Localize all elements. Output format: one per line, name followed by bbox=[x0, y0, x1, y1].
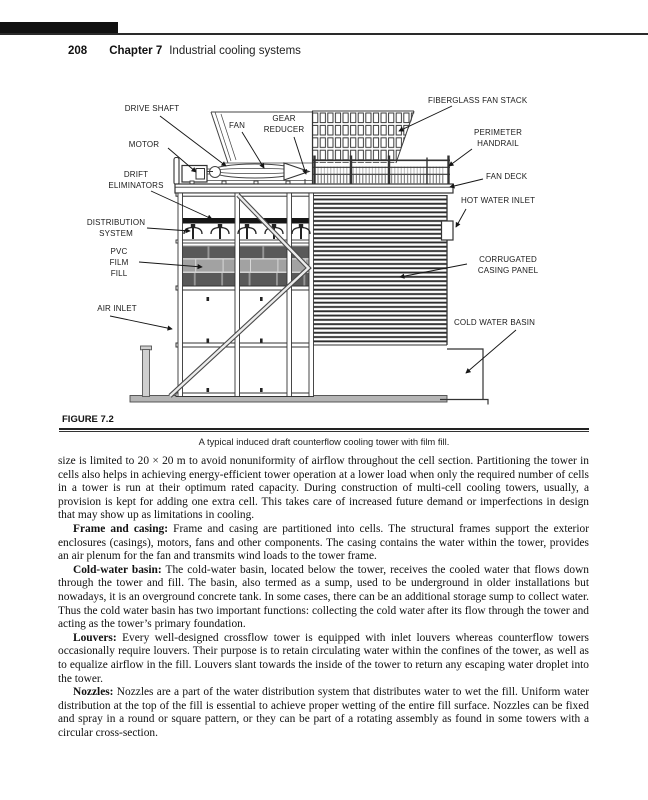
diagonal-brace bbox=[170, 195, 309, 396]
pvc-film-fill-band bbox=[181, 246, 311, 287]
running-header: 208Chapter 7Industrial cooling systems bbox=[68, 44, 628, 58]
figure-rule bbox=[59, 428, 589, 432]
paragraph-text: Every well-designed crossflow tower is e… bbox=[58, 632, 589, 685]
diagram-label-distribution-system: DISTRIBUTION SYSTEM bbox=[84, 217, 148, 239]
diagram-label-drift-eliminators: DRIFT ELIMINATORS bbox=[100, 169, 172, 191]
fan-deck-band bbox=[175, 181, 453, 193]
paragraph-lead: Nozzles: bbox=[73, 686, 113, 698]
cold-water-basin-outline bbox=[440, 349, 488, 405]
paragraph-lead: Cold-water basin: bbox=[73, 564, 162, 576]
label-arrows bbox=[110, 106, 516, 373]
diagram-label-hot-water-inlet: HOT WATER INLET bbox=[461, 195, 561, 206]
body-paragraph: Frame and casing: Frame and casing are p… bbox=[58, 523, 589, 564]
motor-box bbox=[174, 158, 213, 185]
paragraph-text: Nozzles are a part of the water distribu… bbox=[58, 686, 589, 739]
body-paragraph: size is limited to 20 × 20 m to avoid no… bbox=[58, 455, 589, 523]
top-rule bbox=[0, 33, 648, 35]
figure-caption: A typical induced draft counterflow cool… bbox=[59, 436, 589, 447]
diagram-label-cold-water-basin: COLD WATER BASIN bbox=[454, 317, 560, 328]
diagram-label-fiberglass-fan-stack: FIBERGLASS FAN STACK bbox=[428, 95, 556, 106]
page: 208Chapter 7Industrial cooling systems bbox=[0, 0, 648, 800]
paragraph-lead: Frame and casing: bbox=[73, 523, 168, 535]
body-paragraph: Cold-water basin: The cold-water basin, … bbox=[58, 564, 589, 632]
fan-stack bbox=[312, 111, 416, 184]
paragraph-text: size is limited to 20 × 20 m to avoid no… bbox=[58, 455, 589, 521]
body-paragraph: Nozzles: Nozzles are a part of the water… bbox=[58, 686, 589, 740]
diagram-label-gear-reducer: GEAR REDUCER bbox=[256, 113, 312, 135]
body-text: size is limited to 20 × 20 m to avoid no… bbox=[58, 455, 589, 740]
drift-eliminator-band bbox=[181, 218, 311, 224]
distribution-sprinklers bbox=[184, 224, 310, 239]
diagram-label-air-inlet: AIR INLET bbox=[88, 303, 146, 314]
paragraph-lead: Louvers: bbox=[73, 632, 117, 644]
corrugated-casing bbox=[313, 195, 447, 345]
pier bbox=[141, 346, 152, 397]
body-paragraph: Louvers: Every well-designed crossflow t… bbox=[58, 632, 589, 686]
diagram-label-fan: FAN bbox=[212, 120, 262, 131]
gear-reducer-box bbox=[284, 163, 309, 180]
page-number: 208 bbox=[68, 45, 87, 57]
chapter-title: Industrial cooling systems bbox=[169, 45, 301, 57]
diagram-label-corrugated-casing-panel: CORRUGATED CASING PANEL bbox=[466, 254, 550, 276]
diagram-label-fan-deck: FAN DECK bbox=[486, 171, 546, 182]
diagram-label-drive-shaft: DRIVE SHAFT bbox=[112, 103, 192, 114]
diagram-label-motor: MOTOR bbox=[118, 139, 170, 150]
ground-slab bbox=[130, 396, 447, 403]
handrail bbox=[313, 156, 450, 185]
hot-water-inlet-box bbox=[442, 221, 454, 240]
tower-internals bbox=[176, 193, 314, 397]
figure-label: FIGURE 7.2 bbox=[62, 414, 114, 425]
top-bar bbox=[0, 22, 118, 33]
fan-assembly bbox=[207, 163, 309, 184]
chapter-label: Chapter 7 bbox=[109, 45, 162, 57]
diagram-label-perimeter-handrail: PERIMETER HANDRAIL bbox=[466, 127, 530, 149]
diagram-label-pvc-film-fill: PVC FILM FILL bbox=[100, 246, 138, 279]
